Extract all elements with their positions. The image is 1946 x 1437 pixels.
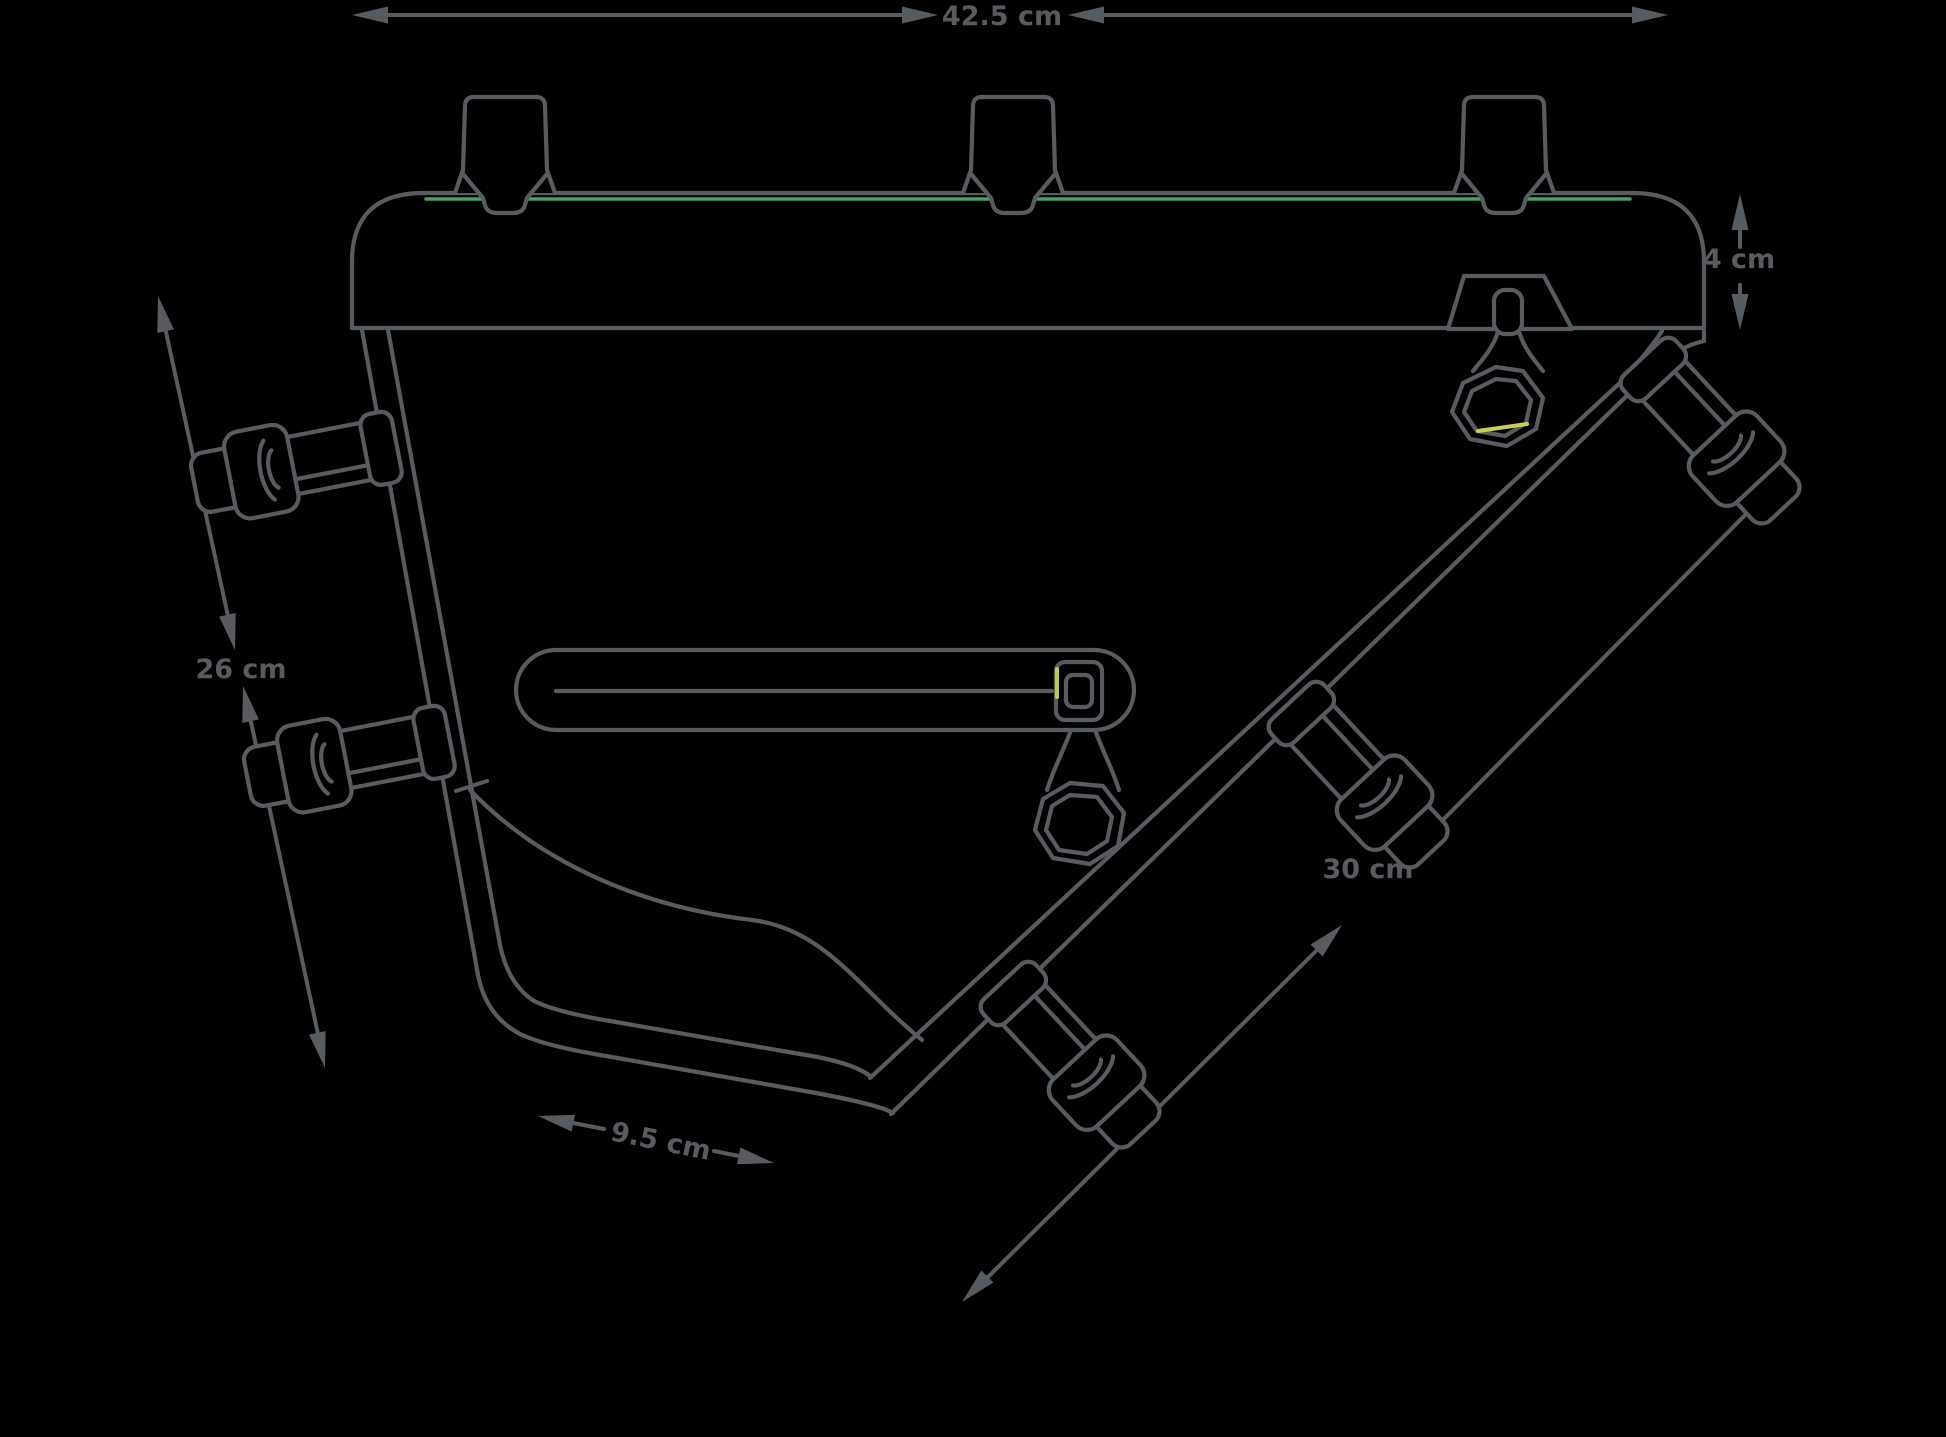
- pull-anchor: [1494, 290, 1522, 334]
- frame-pack-dimension-diagram: 42.5 cm 4 cm 26 cm 30 cm 9.5 cm: [0, 0, 1946, 1437]
- dim-top-width-label: 42.5 cm: [942, 1, 1062, 32]
- dim-seat-tube-side-label: 26 cm: [195, 654, 286, 685]
- dim-lid-height-label: 4 cm: [1703, 244, 1775, 275]
- zipper-slider-icon: [1056, 662, 1102, 720]
- technical-drawing-canvas: 42.5 cm 4 cm 26 cm 30 cm 9.5 cm: [0, 0, 1946, 1437]
